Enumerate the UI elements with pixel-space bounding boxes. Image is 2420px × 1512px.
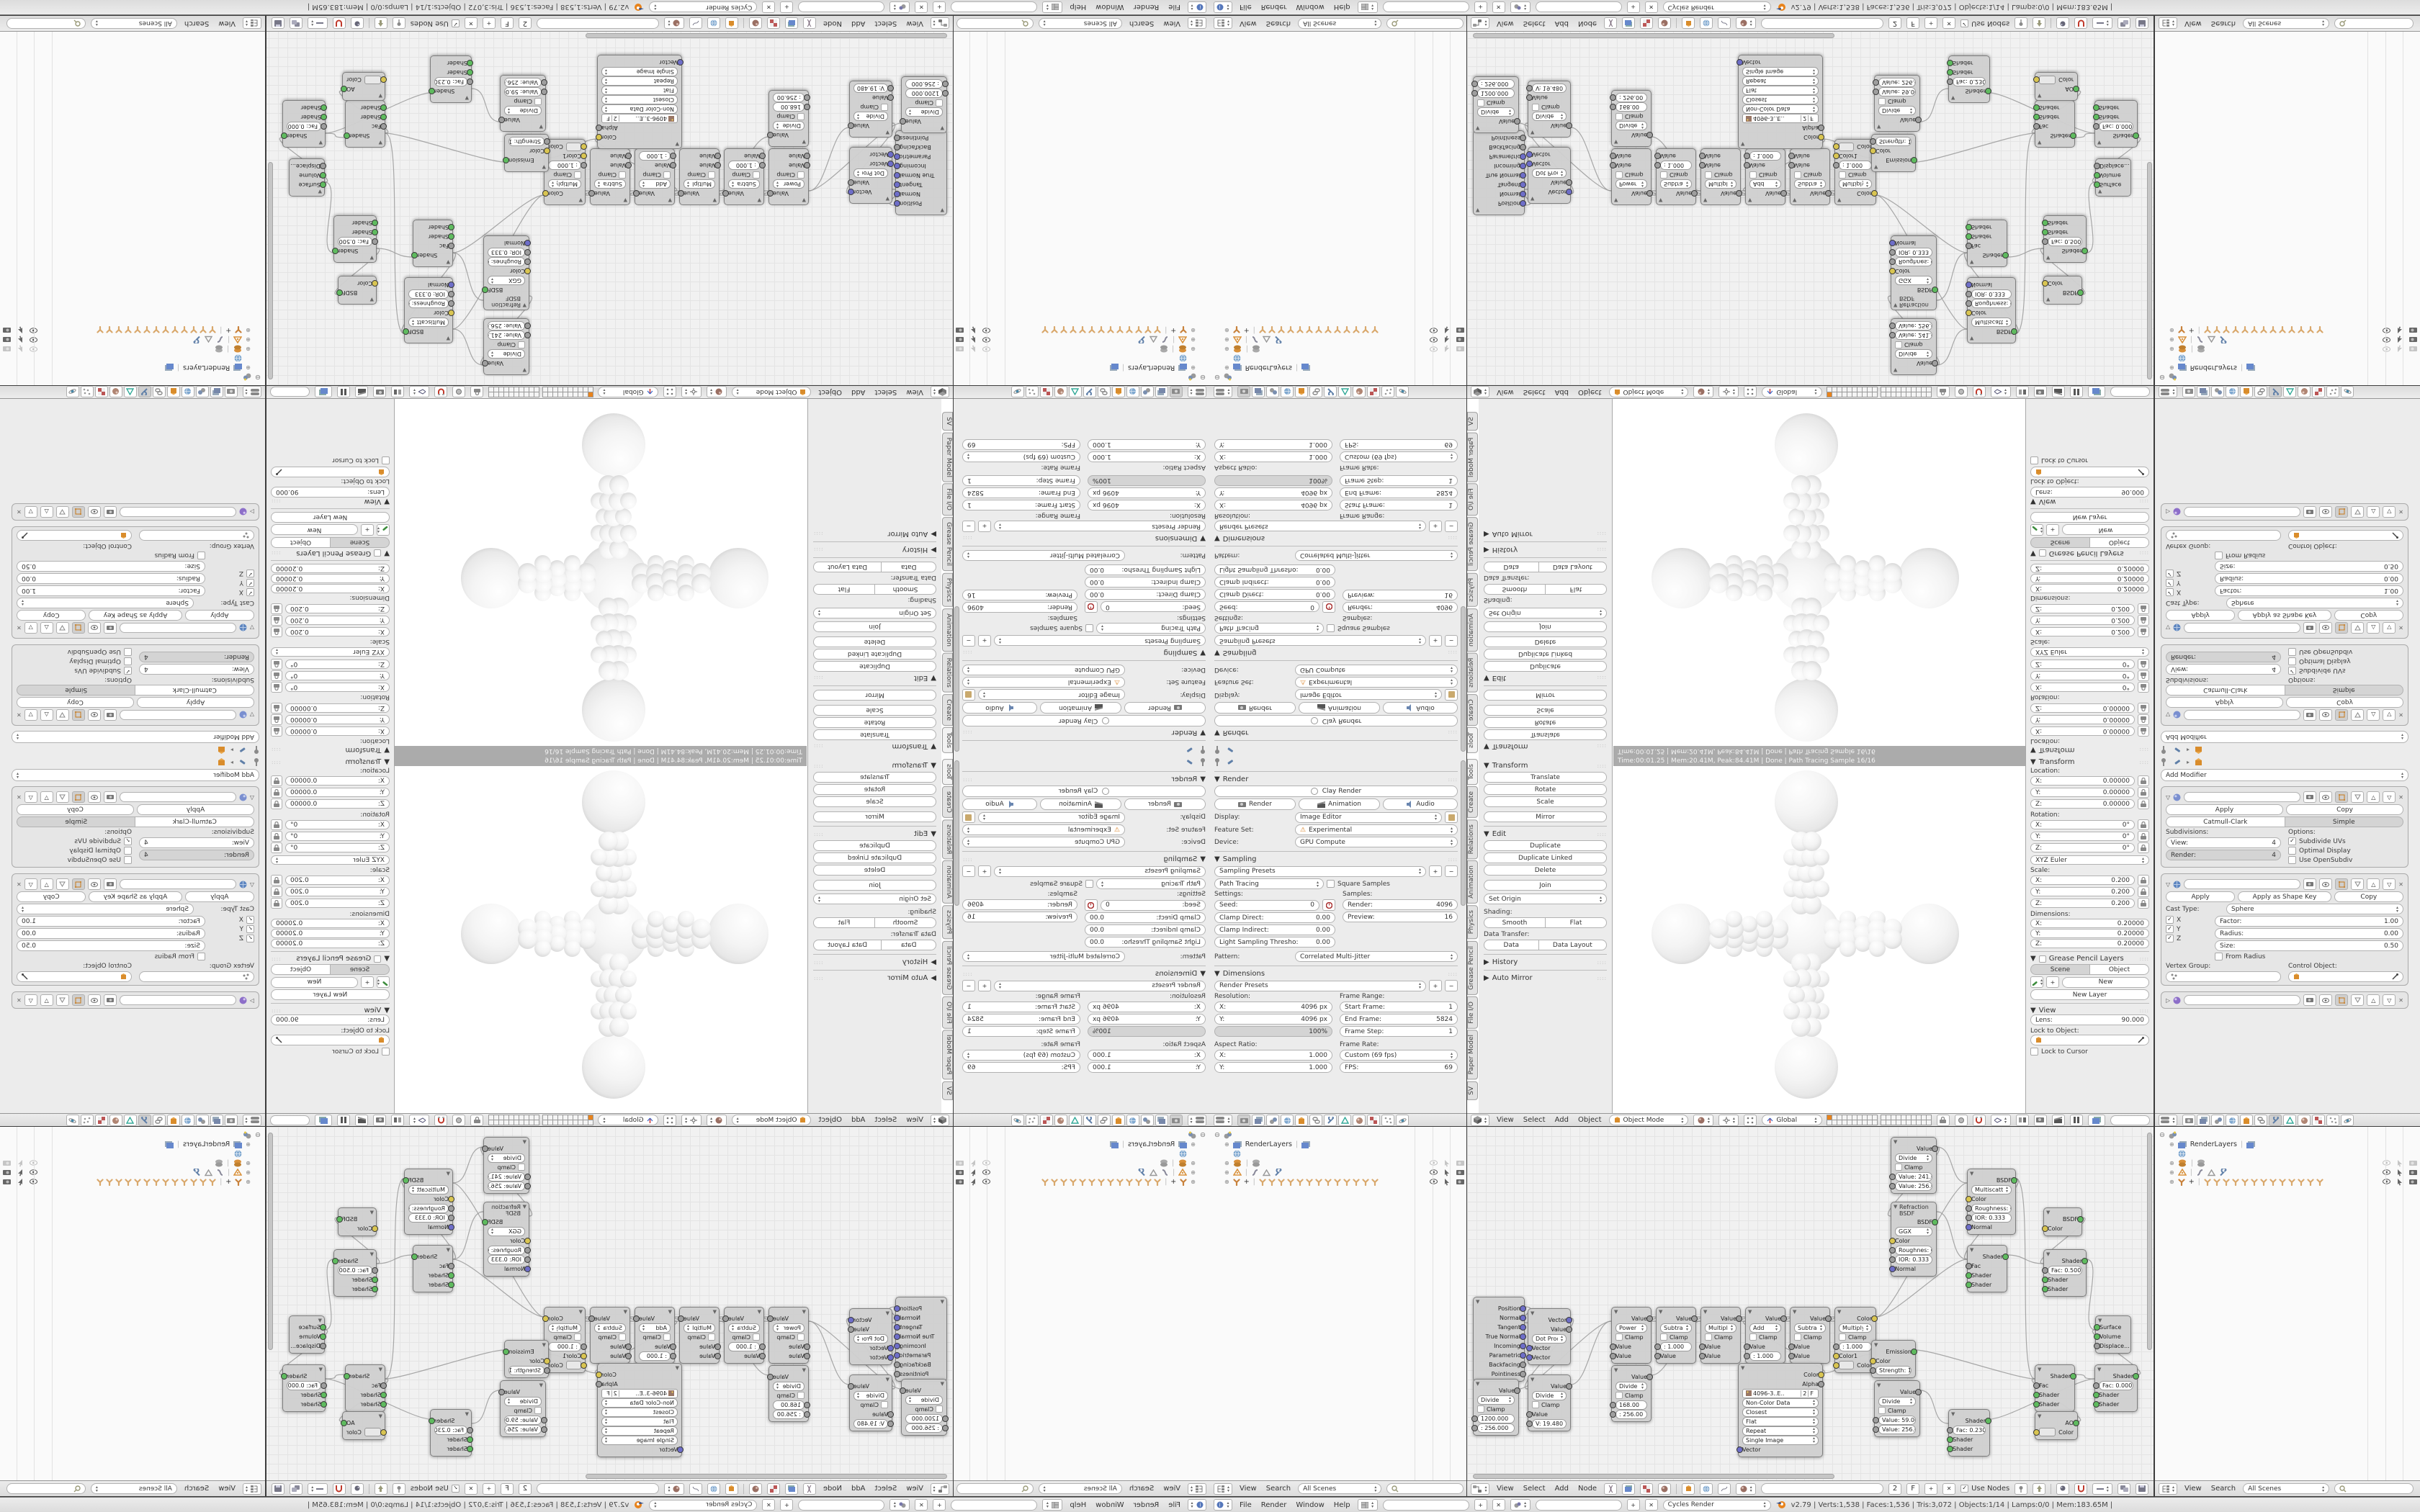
pattern-select[interactable]: Correlated Multi-Jitter▴▾ <box>962 550 1125 561</box>
add-screen-button[interactable]: + <box>933 1499 946 1511</box>
outliner-scene-row[interactable]: ⊖ <box>3 373 261 381</box>
loc-x-field[interactable]: X:0.00000 <box>285 726 390 736</box>
shader-node[interactable]: ▼ValueAdd▴▾ClampValue: 1.000 <box>1745 1307 1785 1364</box>
tab-physics-icon[interactable] <box>2341 1115 2354 1126</box>
aspect-y-field[interactable]: Y:1.000 <box>1088 1062 1206 1073</box>
shader-node[interactable]: ▼ValueDivide▴▾ClampValue: 241.000Value: … <box>483 318 529 375</box>
tab-texture-icon[interactable] <box>1040 387 1053 398</box>
opengl-render-anim-button[interactable] <box>2052 387 2065 398</box>
users-count-button[interactable]: 2 <box>519 1483 532 1495</box>
tab-physics-icon[interactable] <box>1396 1115 1409 1126</box>
expand-icon[interactable]: ▽ <box>250 794 254 801</box>
shader-node[interactable]: ▼ShaderFac: 0.230ShaderShader <box>1948 55 1990 103</box>
cage-toggle[interactable] <box>56 709 69 721</box>
cast-x-checkbox[interactable]: ✓X <box>211 916 254 924</box>
tab-material-icon[interactable] <box>109 387 122 398</box>
auto-render-icon[interactable] <box>2056 18 2069 30</box>
viewport-visibility-toggle[interactable] <box>2319 791 2332 803</box>
lock-icon[interactable] <box>271 898 282 909</box>
preview-samples-field[interactable]: Preview:16 <box>1343 912 1458 922</box>
menu-file[interactable]: File <box>1166 1501 1183 1509</box>
start-frame-field[interactable]: Start Frame:1 <box>962 1002 1080 1012</box>
scl-y-field[interactable]: Y:0.200 <box>285 887 390 896</box>
editor-type-properties[interactable]: ▴▾ <box>243 1115 261 1126</box>
lock-icon[interactable] <box>271 798 282 809</box>
screen-layout-name-field[interactable] <box>951 2 1037 13</box>
orientation-select[interactable]: Global▴▾ <box>1762 387 1821 397</box>
square-samples-checkbox[interactable]: Square Samples <box>1327 624 1390 632</box>
tab-data-icon[interactable] <box>1338 1115 1351 1126</box>
apply-button[interactable]: Apply <box>2166 697 2283 708</box>
simple-button[interactable]: Simple <box>17 685 135 696</box>
expand-icon[interactable]: ▽ <box>250 625 254 631</box>
shader-node[interactable]: ▼ColorMultiply▴▾Clamp: 1.000Color1Color <box>544 1307 586 1373</box>
expand-icon[interactable]: ▽ <box>2166 881 2170 888</box>
add-material-button[interactable]: + <box>483 1483 496 1495</box>
outliner-scene-row[interactable]: ⊖ <box>2159 373 2417 381</box>
editmode-toggle[interactable] <box>72 878 85 890</box>
add-modifier-select[interactable]: Add Modifier▴▾ <box>2161 769 2408 781</box>
shader-linestyle-icon[interactable] <box>1718 18 1731 30</box>
remove-preset-button[interactable]: − <box>962 635 975 647</box>
gp-add-button[interactable]: + <box>361 976 374 988</box>
shader-node[interactable]: ▼ShaderFac: 0.500ShaderShader <box>2043 215 2087 263</box>
resolution-y-field[interactable]: Y:4096 px <box>1214 487 1332 498</box>
scene-browse[interactable]: ▴▾ <box>889 1 910 13</box>
move-down-button[interactable]: ▽ <box>24 506 37 518</box>
delete-screen-button[interactable]: ✕ <box>915 1 928 13</box>
remove-preset-button[interactable]: − <box>962 521 975 532</box>
frame-rate-select[interactable]: Custom (69 fps)▴▾ <box>962 1050 1080 1061</box>
tab-render-icon[interactable] <box>225 1115 238 1126</box>
pin-icon[interactable] <box>1198 757 1207 766</box>
size-field[interactable]: Size:0.50 <box>2215 561 2403 572</box>
shader-node[interactable]: ▼BSDFColor <box>338 1207 377 1236</box>
subdivide-uvs-checkbox[interactable]: ✓Subdivide UVs <box>2288 667 2403 675</box>
shader-node[interactable]: ▼AOColor <box>2035 1411 2078 1440</box>
material-ball-icon[interactable] <box>749 18 762 30</box>
layers-widget[interactable] <box>488 1115 593 1125</box>
shader-node[interactable]: ▼EmissionColorStrength: 1.000 <box>504 1340 549 1378</box>
use-opensubdiv-checkbox[interactable]: Use OpenSubdiv <box>2288 648 2403 656</box>
armature-plus[interactable]: + <box>2189 326 2195 334</box>
expand-icon[interactable]: ▽ <box>2166 794 2170 801</box>
tab-render-icon[interactable] <box>2182 387 2195 398</box>
add-preset-button[interactable]: + <box>1429 635 1442 647</box>
lock-camera-icon[interactable] <box>470 1115 483 1126</box>
tab-render-layers-icon[interactable] <box>1155 1115 1168 1126</box>
snap-toggle[interactable] <box>1973 387 1986 398</box>
scl-y-field[interactable]: Y:0.200 <box>2030 887 2135 896</box>
clamp-direct-field[interactable]: Clamp Direct:0.00 <box>1214 589 1335 600</box>
render-visibility-toggle[interactable] <box>104 709 117 721</box>
add-screen-button[interactable]: + <box>1474 1499 1487 1511</box>
feature-set-select[interactable]: ⚠Experimental▴▾ <box>1295 677 1458 688</box>
menu-object[interactable]: Object <box>816 1116 844 1124</box>
users-count-button[interactable]: 2 <box>519 18 532 30</box>
move-up-button[interactable]: △ <box>40 994 53 1006</box>
scl-x-field[interactable]: X:0.200 <box>285 627 390 636</box>
editmode-toggle[interactable] <box>2335 506 2348 518</box>
shader-node[interactable]: ▼ValueDivide▴▾Clamp1200.000: 256.000 <box>901 1379 947 1436</box>
gp-layers-panel[interactable]: ▼ Grease Pencil Layers:::: <box>271 955 390 963</box>
viewport-shading-select[interactable]: ▴▾ <box>707 387 727 398</box>
pin-icon[interactable] <box>2159 746 2168 755</box>
manipulator-toggle[interactable] <box>663 387 676 398</box>
render-visibility-toggle[interactable] <box>104 506 117 518</box>
pin-icon[interactable] <box>252 746 261 755</box>
scrollbar-vertical[interactable] <box>268 162 273 379</box>
menu-help[interactable]: Help <box>1067 1501 1088 1509</box>
expand-icon[interactable]: ▷ <box>250 997 254 1004</box>
copy-button[interactable]: Copy <box>2286 804 2403 815</box>
add-scene-button[interactable]: + <box>1627 1 1640 13</box>
orientation-select[interactable]: Global▴▾ <box>598 387 658 397</box>
render-presets-select[interactable]: Render Presets▴▾ <box>994 521 1206 532</box>
light-sampling-threshold-field[interactable]: Light Sampling Thresho:0.00 <box>1214 564 1335 575</box>
compositing-tree-icon[interactable] <box>1622 18 1635 30</box>
render-engine-select[interactable]: Cycles Render▴▾ <box>649 1500 757 1511</box>
menu-add[interactable]: Add <box>1553 1485 1571 1493</box>
editor-type-node[interactable]: ▴▾ <box>931 18 949 30</box>
snap-toggle[interactable] <box>434 1115 447 1126</box>
shader-node[interactable]: ▼ValueDivide▴▾ClampValue: 241.000Value: … <box>1891 318 1937 375</box>
clay-render-button[interactable]: Clay Render <box>1214 786 1458 797</box>
render-visibility-toggle[interactable] <box>104 622 117 634</box>
add-preset-button[interactable]: + <box>978 521 991 532</box>
feature-set-select[interactable]: ⚠Experimental▴▾ <box>962 677 1125 688</box>
editor-type-outliner[interactable]: ▴▾ <box>2159 1483 2177 1495</box>
gp-new-button[interactable]: New <box>2062 525 2149 536</box>
render-button[interactable]: Render <box>1124 798 1206 810</box>
apply-button[interactable]: Apply <box>2166 610 2235 621</box>
loc-z-field[interactable]: Z:0.00000 <box>285 799 390 809</box>
screen-layout-browse[interactable]: ▴▾ <box>1358 1499 1378 1511</box>
preview-samples-field[interactable]: Preview:16 <box>1343 590 1458 600</box>
seed-field[interactable]: Seed:0 <box>1101 602 1206 613</box>
shader-node[interactable]: ▼ValueMultiply▴▾ClampValueValue <box>679 148 720 205</box>
menu-search[interactable]: Search <box>2209 19 2238 27</box>
armature-plus[interactable]: + <box>1244 1178 1250 1186</box>
render-engine-select[interactable]: Cycles Render▴▾ <box>1663 2 1771 13</box>
end-frame-field[interactable]: End Frame:5824 <box>962 1014 1080 1025</box>
tab-physics-icon[interactable] <box>2341 387 2354 398</box>
menu-view[interactable]: View <box>1237 19 1259 27</box>
shader-world-icon[interactable] <box>707 1483 720 1495</box>
node-canvas[interactable]: ▼PositionNormalTangentTrue NormalIncomin… <box>266 32 953 385</box>
users-count-button[interactable]: 2 <box>1888 1483 1901 1495</box>
lock-icon[interactable] <box>2138 898 2149 909</box>
cast-type-select[interactable]: Sphere▴▾ <box>2226 904 2403 914</box>
tab-physics-icon[interactable] <box>1396 387 1409 398</box>
lock-icon[interactable] <box>2138 842 2149 853</box>
tab-object-icon[interactable] <box>1295 387 1308 398</box>
viewport-visibility-toggle[interactable] <box>2319 709 2332 721</box>
pin-node-button[interactable] <box>2015 1483 2027 1495</box>
tab-render-icon[interactable] <box>225 387 238 398</box>
clamp-direct-field[interactable]: Clamp Direct:0.00 <box>1085 589 1206 600</box>
shader-node[interactable]: ▼ShaderFacShaderShader <box>2035 1364 2075 1412</box>
snap-element-select[interactable]: ▴▾ <box>1991 1115 2011 1126</box>
renderlayer-button[interactable] <box>2088 1115 2105 1126</box>
viewport-visibility-toggle[interactable] <box>88 622 101 634</box>
outliner-mesh-row[interactable]: ⊕| <box>956 345 1196 353</box>
animation-button[interactable]: Animation <box>1299 798 1380 810</box>
gp-layers-panel[interactable]: ▼ Grease Pencil Layers:::: <box>2030 955 2149 963</box>
outliner-mesh-row[interactable]: ⊕| <box>1224 1159 1464 1167</box>
rot-y-field[interactable]: Y:0° <box>2030 671 2135 680</box>
shader-node[interactable]: ▼BSDFMultiscatter GGX▴▾ColorRoughness: 0… <box>1967 1169 2016 1235</box>
loc-z-field[interactable]: Z:0.00000 <box>285 703 390 713</box>
outliner-world-row[interactable] <box>3 354 242 362</box>
apply-button[interactable]: Apply <box>185 891 254 902</box>
editmode-toggle[interactable] <box>72 994 85 1006</box>
render-visibility-toggle[interactable] <box>104 791 117 803</box>
use-opensubdiv-checkbox[interactable]: Use OpenSubdiv <box>17 648 132 656</box>
render-visibility-toggle[interactable] <box>2303 622 2316 634</box>
editor-type-properties[interactable]: ▴▾ <box>2159 387 2177 398</box>
viewport-visibility-toggle[interactable] <box>2319 622 2332 634</box>
tab-texture-icon[interactable] <box>2312 387 2325 398</box>
shader-node[interactable]: ▼ValueDivide▴▾ClampValue: 59.000Value: 2… <box>500 75 546 132</box>
outliner-object-row[interactable]: ⊕| <box>3 1169 251 1176</box>
scrollbar-horizontal[interactable] <box>1473 1474 1834 1479</box>
modifier-name-field[interactable] <box>120 792 236 802</box>
modifier-name-field[interactable] <box>2184 623 2300 633</box>
snap-node-toggle[interactable] <box>2074 18 2087 30</box>
texture-tree-icon[interactable] <box>1640 18 1653 30</box>
delete-modifier-button[interactable]: ✕ <box>17 997 22 1004</box>
editmode-toggle[interactable] <box>2335 709 2348 721</box>
shader-node[interactable]: ▼AOColor <box>342 1411 385 1440</box>
seed-field[interactable]: Seed:0 <box>1214 900 1319 911</box>
use-nodes-checkbox[interactable]: ✓Use Nodes <box>1960 1485 2009 1493</box>
control-object-field[interactable] <box>2288 530 2403 541</box>
menu-view[interactable]: View <box>1161 1485 1183 1493</box>
tab-material-icon[interactable] <box>1353 1115 1366 1126</box>
shader-node[interactable]: ▼ValuePower▴▾ClampValueValue <box>1611 148 1652 205</box>
control-object-field[interactable] <box>17 530 132 541</box>
outliner-object-row[interactable]: ⊕| <box>1224 1169 1464 1176</box>
parent-node-tree-button[interactable] <box>2033 1483 2045 1495</box>
shader-node[interactable]: ▼SurfaceVolumeDisplace... <box>2095 1315 2131 1354</box>
add-preset-button[interactable]: + <box>1429 980 1442 991</box>
move-down-button[interactable]: ▽ <box>2383 506 2396 518</box>
outliner-world-row[interactable] <box>3 1150 242 1158</box>
display-mode-select[interactable]: All Scenes▴▾ <box>2243 18 2329 29</box>
catmull-clark-button[interactable]: Catmull-Clark <box>135 816 255 827</box>
aspect-x-field[interactable]: X:1.000 <box>1214 1050 1332 1061</box>
opengl-render-button[interactable] <box>2034 1115 2047 1126</box>
start-frame-field[interactable]: Start Frame:1 <box>1340 500 1458 510</box>
lock-camera-icon[interactable] <box>1937 387 1950 398</box>
tab-data-icon[interactable] <box>1338 387 1351 398</box>
node-canvas[interactable]: ▼PositionNormalTangentTrue NormalIncomin… <box>1467 32 2154 385</box>
lock-to-object-field[interactable] <box>271 1035 390 1045</box>
lock-icon[interactable] <box>2138 714 2149 725</box>
lock-icon[interactable] <box>271 842 282 853</box>
render-visibility-toggle[interactable] <box>2303 791 2316 803</box>
shader-node[interactable]: ▼ValueDivide▴▾ClampValue: 59.000Value: 2… <box>1874 75 1920 132</box>
editor-type-outliner[interactable]: ▴▾ <box>2159 18 2177 30</box>
editor-type-info[interactable]: i▴▾ <box>1214 1499 1232 1511</box>
outliner-scene-row[interactable]: ⊖ <box>3 1131 261 1139</box>
material-browse-select[interactable]: ▴▾ <box>664 1483 684 1495</box>
menu-file[interactable]: File <box>1237 1501 1254 1509</box>
editor-type-node[interactable]: ▴▾ <box>1471 1483 1489 1495</box>
tab-object-icon[interactable] <box>167 1115 180 1126</box>
display-mode-select[interactable]: All Scenes▴▾ <box>1298 18 1381 29</box>
shader-node[interactable]: ▼ShaderFacShaderShader <box>1967 1245 2007 1292</box>
add-preset-button[interactable]: + <box>978 635 991 647</box>
material-name-field[interactable] <box>1761 1483 1883 1494</box>
armature-plus[interactable]: + <box>2189 1178 2195 1186</box>
move-down-button[interactable]: ▽ <box>2383 878 2396 890</box>
preview-samples-field[interactable]: Preview:16 <box>962 912 1077 922</box>
cast-z-checkbox[interactable]: ✓Z <box>2166 935 2209 942</box>
snap-node-mode-select[interactable]: ▴▾ <box>2092 1483 2112 1495</box>
frame-rate-select[interactable]: Custom (69 fps)▴▾ <box>962 451 1080 462</box>
menu-help[interactable]: Help <box>1332 1501 1353 1509</box>
shader-node[interactable]: ▼VectorValueDot Product▴▾VectorVector <box>1528 1308 1571 1365</box>
catmull-clark-button[interactable]: Catmull-Clark <box>2166 816 2285 827</box>
audio-button[interactable]: Audio <box>962 798 1037 810</box>
expand-icon[interactable]: ▷ <box>2166 509 2170 516</box>
menu-view[interactable]: View <box>2182 19 2204 27</box>
gp-new-layer-button[interactable]: New Layer <box>271 512 390 523</box>
node-canvas[interactable]: ▼PositionNormalTangentTrue NormalIncomin… <box>1467 1127 2154 1480</box>
shader-node[interactable]: ▼SurfaceVolumeDisplace... <box>289 1315 325 1354</box>
shader-node[interactable]: ▼BSDFColor <box>2043 1207 2082 1236</box>
shader-node[interactable]: ▼ShaderFac: 0.000ShaderShader <box>282 100 326 148</box>
gp-new-layer-button[interactable]: New Layer <box>2030 512 2149 523</box>
move-down-button[interactable]: ▽ <box>24 994 37 1006</box>
pin-icon[interactable] <box>1198 746 1207 755</box>
tab-data-icon[interactable] <box>124 387 137 398</box>
dim-y-field[interactable]: Y:0.20000 <box>271 929 390 938</box>
tab-modifiers-icon[interactable] <box>2269 1115 2282 1126</box>
outliner-renderlayers-row[interactable]: ⊕RenderLayers| <box>3 364 251 372</box>
editor-type-3d-view[interactable]: ▴▾ <box>931 1115 949 1126</box>
menu-view[interactable]: View <box>1161 19 1183 27</box>
cast-x-checkbox[interactable]: ✓X <box>2166 588 2209 596</box>
tab-physics-icon[interactable] <box>1011 1115 1024 1126</box>
add-modifier-select[interactable]: Add Modifier▴▾ <box>12 731 259 743</box>
outliner-mesh-row[interactable]: ⊕| <box>1224 345 1464 353</box>
size-field[interactable]: Size:0.50 <box>17 561 205 572</box>
pattern-select[interactable]: Correlated Multi-Jitter▴▾ <box>962 951 1125 962</box>
snap-node-mode-select[interactable]: ▴▾ <box>308 1483 328 1495</box>
add-scene-button[interactable]: + <box>780 1499 793 1511</box>
outliner-mesh-row[interactable]: ⊕| <box>3 345 251 353</box>
copy-button[interactable]: Copy <box>17 697 134 708</box>
catmull-clark-button[interactable]: Catmull-Clark <box>135 685 255 696</box>
delete-modifier-button[interactable]: ✕ <box>2398 712 2403 719</box>
rot-y-field[interactable]: Y:0° <box>285 671 390 680</box>
material-browse-select[interactable]: ▴▾ <box>1736 1483 1756 1495</box>
fake-user-button[interactable]: F <box>1906 18 1919 30</box>
auto-render-icon[interactable] <box>351 18 364 30</box>
apply-button[interactable]: Apply <box>185 610 254 621</box>
shader-node[interactable]: ▼ShaderFac: 0.230ShaderShader <box>430 1409 472 1457</box>
menu-file[interactable]: File <box>1237 4 1254 12</box>
tab-world-icon[interactable] <box>1281 1115 1294 1126</box>
tab-modifiers-icon[interactable] <box>1324 1115 1337 1126</box>
viewport-visibility-toggle[interactable] <box>2319 506 2332 518</box>
apply-button[interactable]: Apply <box>2166 891 2235 902</box>
clay-render-button[interactable]: Clay Render <box>962 786 1206 797</box>
cast-z-checkbox[interactable]: ✓Z <box>211 570 254 577</box>
modifier-name-field[interactable] <box>120 507 236 517</box>
editor-type-outliner[interactable]: ▴▾ <box>243 1483 261 1495</box>
radius-field[interactable]: Radius:0.00 <box>17 928 205 939</box>
renderlayer-field[interactable] <box>270 387 310 397</box>
scene-browse[interactable]: ▴▾ <box>889 1499 910 1511</box>
scl-z-field[interactable]: Z:0.200 <box>2030 899 2135 908</box>
apply-as-shape-key-button[interactable]: Apply as Shape Key <box>2238 610 2331 621</box>
shader-linestyle-icon[interactable] <box>689 18 702 30</box>
remove-preset-button[interactable]: − <box>1445 980 1458 991</box>
render-subdiv-field[interactable]: Render:4 <box>2166 652 2281 662</box>
tab-render-icon[interactable] <box>1237 387 1250 398</box>
gp-pencil-button[interactable]: ▴▾ <box>2030 976 2043 988</box>
lock-icon[interactable] <box>271 659 282 670</box>
lock-icon[interactable] <box>2138 626 2149 637</box>
render-samples-field[interactable]: Render:4096 <box>1343 899 1458 910</box>
move-up-button[interactable]: △ <box>2367 709 2380 721</box>
viewport-visibility-toggle[interactable] <box>88 506 101 518</box>
editor-type-properties[interactable]: ▴▾ <box>1188 387 1206 398</box>
add-screen-button[interactable]: + <box>933 1 946 13</box>
layers-widget[interactable] <box>488 387 593 397</box>
pattern-select[interactable]: Correlated Multi-Jitter▴▾ <box>1295 951 1458 962</box>
shader-node[interactable]: ▼ValueDivide▴▾Clamp1200.000: 256.000 <box>1473 1379 1519 1436</box>
menu-add[interactable]: Add <box>1553 388 1571 396</box>
shader-node[interactable]: ▼ColorAlpha4096-3..E..2FNon-Color Data▴▾… <box>597 55 682 149</box>
proportional-edit-toggle[interactable] <box>452 387 465 398</box>
gp-new-button[interactable]: New <box>2062 977 2149 988</box>
audio-button[interactable]: Audio <box>962 702 1037 714</box>
delete-scene-button[interactable]: ✕ <box>1645 1 1658 13</box>
apply-button[interactable]: Apply <box>137 697 254 708</box>
material-browse-select[interactable]: ▴▾ <box>664 18 684 30</box>
lock-icon[interactable] <box>2138 703 2149 714</box>
menu-select[interactable]: Select <box>872 19 899 27</box>
device-select[interactable]: GPU Compute▴▾ <box>1295 837 1458 847</box>
render-samples-field[interactable]: Render:4096 <box>962 899 1077 910</box>
pivot-point-select[interactable]: ▴▾ <box>1718 387 1739 398</box>
armature-plus[interactable]: + <box>225 326 231 334</box>
outliner-object-row[interactable]: ⊕| <box>956 1169 1196 1176</box>
auto-render-icon[interactable] <box>2056 1483 2069 1495</box>
apply-button[interactable]: Apply <box>137 804 254 815</box>
scl-z-field[interactable]: Z:0.200 <box>285 899 390 908</box>
outliner-renderlayers-row[interactable]: ⊕RenderLayers| <box>2169 364 2417 372</box>
tab-particles-icon[interactable] <box>2326 1115 2339 1126</box>
expand-icon[interactable]: ▷ <box>250 509 254 516</box>
gp-new-layer-button[interactable]: New Layer <box>2030 989 2149 1000</box>
tab-object-icon[interactable] <box>1112 387 1125 398</box>
lock-icon[interactable] <box>271 875 282 886</box>
clay-render-button[interactable]: Clay Render <box>1214 715 1458 726</box>
pause-render-button[interactable] <box>2070 1115 2083 1126</box>
unlink-material-button[interactable]: ✕ <box>465 1483 478 1495</box>
shader-node[interactable]: ▼ValueSubtract▴▾ClampValueValue <box>1790 148 1830 205</box>
lock-icon[interactable] <box>271 615 282 626</box>
tab-particles-icon[interactable] <box>1026 1115 1039 1126</box>
resolution-x-field[interactable]: X:4096 px <box>1214 500 1332 510</box>
delete-screen-button[interactable]: ✕ <box>1492 1499 1505 1511</box>
